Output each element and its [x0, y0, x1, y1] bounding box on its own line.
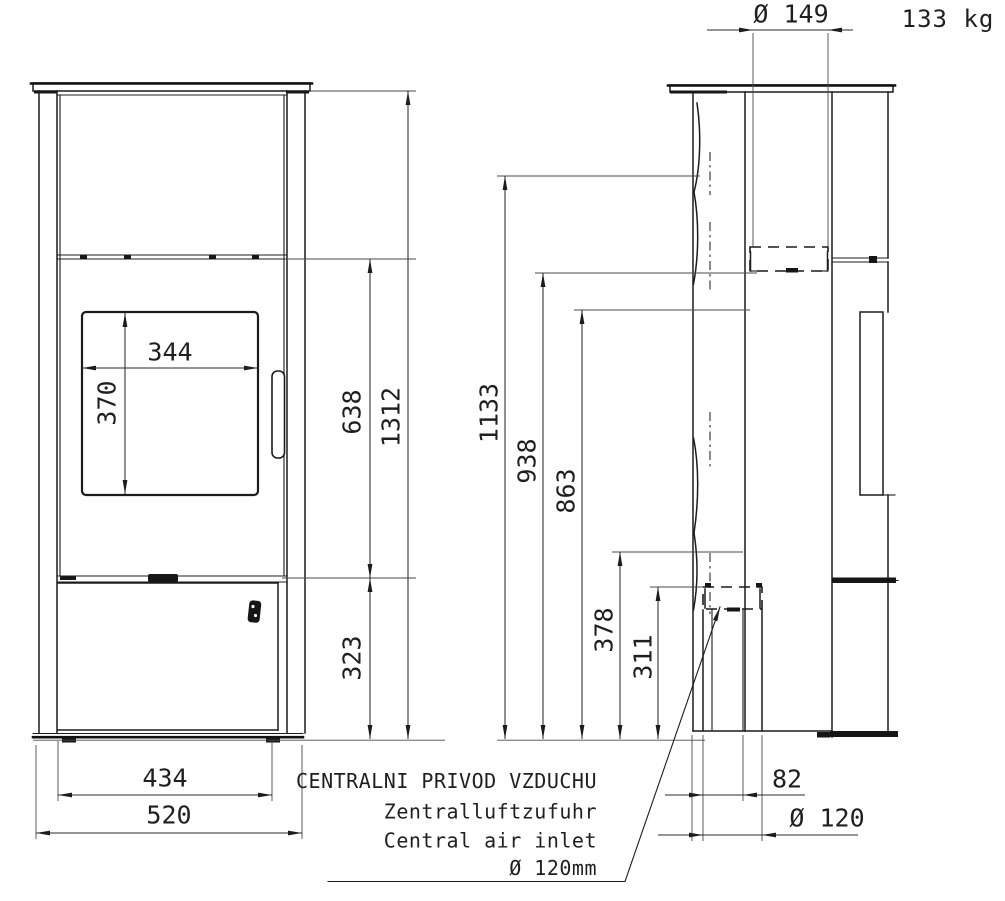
dim-flue-collar-diameter: Ø 149 — [753, 0, 828, 29]
dim-inlet-rear-offset: 82 — [772, 765, 802, 794]
side-dimensions: Ø 149 133 kg 1133 938 863 378 311 — [475, 0, 995, 841]
dim-base-height: 323 — [338, 635, 367, 680]
air-inlet-note-en: Central air inlet — [384, 829, 597, 853]
pedestal — [703, 610, 762, 731]
rear-flue-outlet — [750, 247, 828, 273]
side-view — [668, 85, 898, 738]
dim-glass-width: 344 — [147, 338, 192, 367]
dim-inlet-axis-height: 311 — [629, 634, 658, 679]
central-air-inlet — [703, 583, 762, 612]
side-base-bar — [830, 731, 898, 737]
ash-door — [58, 583, 278, 730]
air-inlet-note-cs: CENTRALNI PRIVOD VZDUCHU — [296, 769, 597, 793]
technical-drawing-sheet: 344 370 638 323 1312 434 520 — [0, 0, 1005, 901]
air-inlet-note-de: Zentralluftzufuhr — [384, 800, 597, 824]
front-lower-divider — [57, 574, 287, 582]
rear-panel — [832, 92, 898, 731]
dim-overall-width: 520 — [146, 801, 191, 830]
air-inlet-note-size: Ø 120mm — [509, 856, 597, 880]
rear-panel-recess — [860, 312, 883, 495]
dim-overall-height: 1312 — [377, 387, 406, 447]
front-view — [31, 83, 312, 743]
lock-emblem — [247, 600, 261, 623]
side-foot — [817, 732, 830, 738]
stove-dimension-drawing: 344 370 638 323 1312 434 520 — [0, 0, 1005, 901]
dim-inlet-top-height: 378 — [590, 607, 619, 652]
weight-label: 133 kg — [902, 5, 995, 33]
dim-side-panel-height: 863 — [552, 468, 581, 513]
dim-flue-axis-height: 1133 — [475, 383, 504, 443]
dim-inlet-pipe-diameter: Ø 120 — [789, 804, 864, 833]
door-handle — [272, 371, 285, 458]
dim-glass-height: 370 — [93, 380, 122, 425]
dim-rear-outlet-height: 938 — [513, 438, 542, 483]
dim-inner-width: 434 — [142, 764, 187, 793]
rear-shelf — [832, 578, 896, 584]
latch — [148, 574, 178, 582]
dim-firebox-top-height: 638 — [338, 389, 367, 434]
front-upper-divider — [57, 255, 287, 260]
front-dimensions: 344 370 638 323 1312 434 520 — [33, 91, 445, 839]
front-base — [33, 734, 303, 743]
